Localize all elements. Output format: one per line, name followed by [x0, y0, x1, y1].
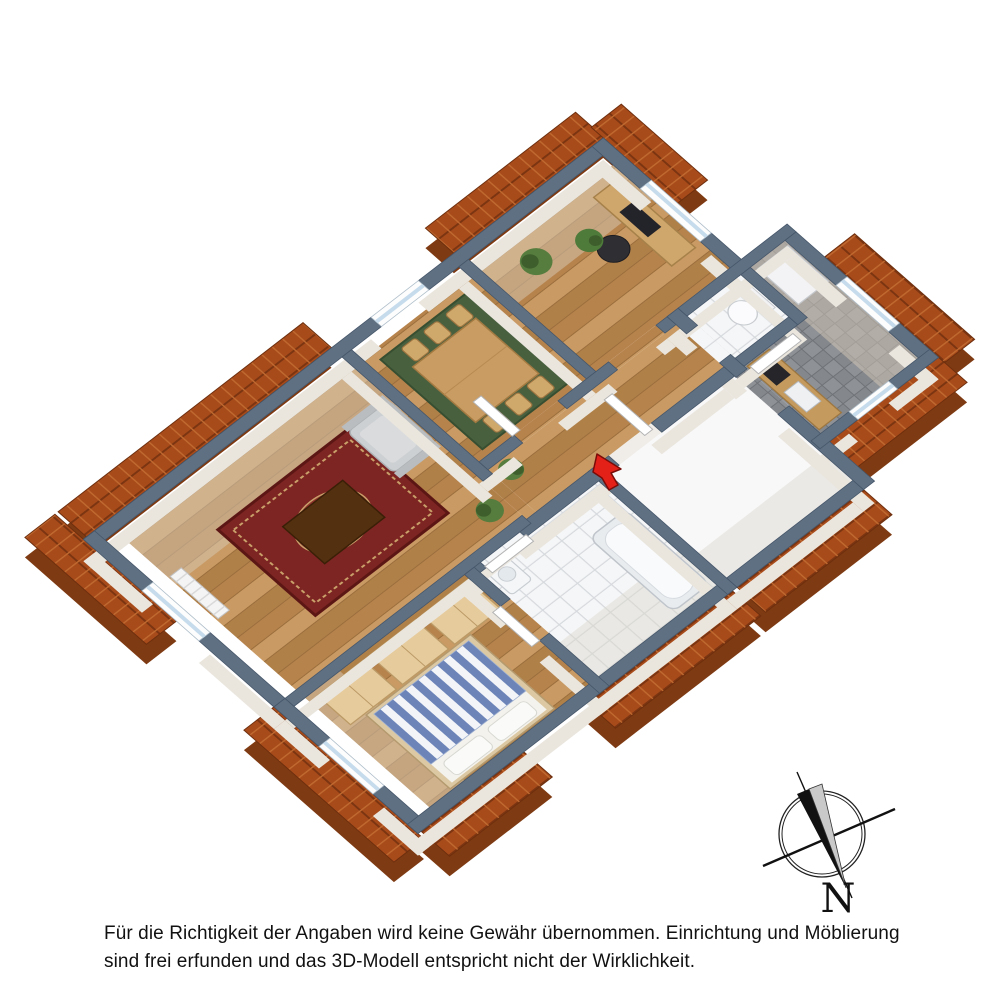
- disclaimer-line-1: Für die Richtigkeit der Angaben wird kei…: [104, 920, 904, 948]
- north-label: N: [821, 876, 856, 922]
- north-needle-light: [809, 784, 846, 888]
- disclaimer-line-2: sind frei erfunden und das 3D-Modell ent…: [104, 948, 904, 976]
- floorplan-canvas: N: [0, 0, 1000, 1000]
- compass-rose: N: [763, 772, 895, 922]
- disclaimer-text: Für die Richtigkeit der Angaben wird kei…: [104, 920, 904, 975]
